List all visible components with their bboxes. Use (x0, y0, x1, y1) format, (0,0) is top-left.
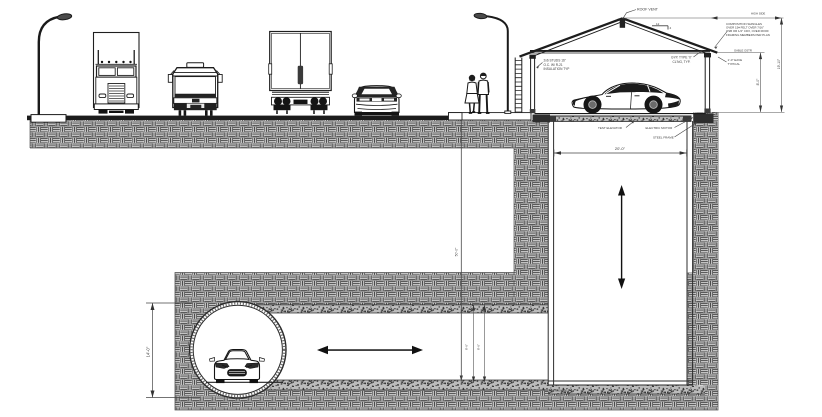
svg-text:8'-6": 8'-6" (477, 344, 481, 350)
svg-text:CL'NG, TYP.: CL'NG, TYP. (673, 60, 691, 64)
svg-text:FRAMING MEMBERS PER PLAN: FRAMING MEMBERS PER PLAN (726, 33, 770, 37)
svg-text:TYPICAL: TYPICAL (728, 62, 741, 66)
svg-text:TEST ELEVATOR: TEST ELEVATOR (598, 126, 623, 130)
svg-text:50'-0": 50'-0" (455, 247, 459, 256)
svg-text:ROOF VENT: ROOF VENT (637, 8, 659, 12)
svg-text:HIGH SIDE: HIGH SIDE (751, 12, 765, 16)
svg-text:8'-6": 8'-6" (465, 344, 469, 350)
svg-text:STEEL FRAME: STEEL FRAME (653, 135, 674, 139)
svg-text:INSULATION TYP: INSULATION TYP (544, 67, 570, 71)
svg-text:8'-0": 8'-0" (756, 78, 760, 86)
svg-text:12: 12 (656, 22, 660, 26)
svg-text:ELECTRIC MOTOR: ELECTRIC MOTOR (646, 126, 674, 130)
svg-text:GABLE OSTR: GABLE OSTR (734, 48, 752, 52)
svg-text:GDE ELEV 380.0: GDE ELEV 380.0 (549, 389, 570, 393)
svg-text:20'-0": 20'-0" (615, 146, 626, 151)
svg-text:19'-10": 19'-10" (777, 58, 781, 69)
svg-text:14'-0": 14'-0" (146, 346, 151, 357)
